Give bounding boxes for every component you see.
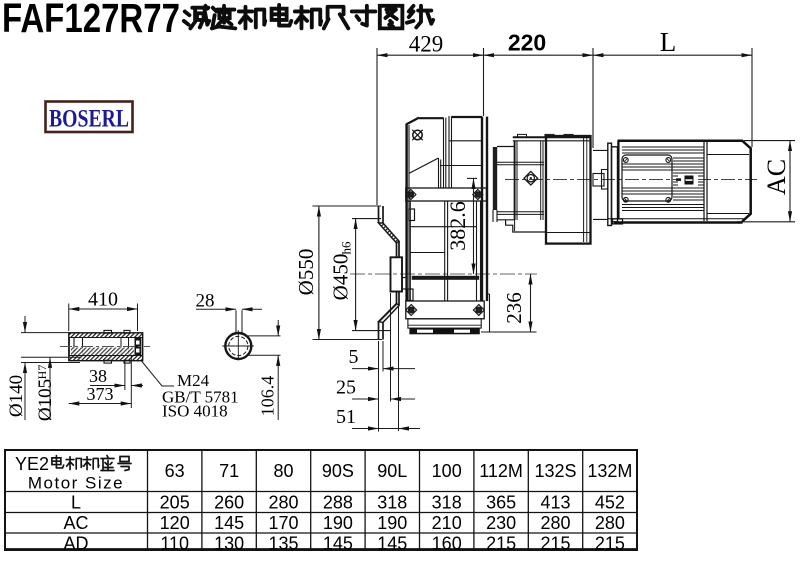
svg-text:h6: h6: [339, 241, 354, 255]
svg-text:132S: 132S: [534, 461, 576, 481]
svg-text:90L: 90L: [377, 461, 407, 481]
svg-text:Ø105: Ø105: [35, 379, 56, 421]
svg-text:38: 38: [89, 366, 107, 386]
svg-text:452: 452: [595, 493, 625, 513]
svg-text:288: 288: [323, 493, 353, 513]
svg-text:135: 135: [268, 534, 298, 554]
svg-text:110: 110: [160, 534, 189, 554]
svg-text:Motor Size: Motor Size: [28, 474, 124, 493]
svg-text:190: 190: [377, 513, 407, 533]
svg-text:80: 80: [273, 461, 293, 481]
svg-text:413: 413: [540, 493, 570, 513]
svg-text:AC: AC: [63, 513, 88, 533]
svg-text:L: L: [71, 493, 81, 513]
svg-text:51: 51: [336, 406, 356, 428]
svg-text:210: 210: [432, 513, 462, 533]
svg-text:318: 318: [432, 493, 462, 513]
svg-text:205: 205: [160, 493, 190, 513]
svg-text:429: 429: [409, 32, 444, 57]
svg-text:YE2: YE2: [15, 454, 49, 474]
svg-text:90S: 90S: [322, 461, 354, 481]
svg-text:AC: AC: [762, 159, 791, 195]
svg-text:Ø550: Ø550: [294, 249, 318, 296]
svg-text:106.4: 106.4: [258, 376, 278, 417]
svg-text:215: 215: [486, 534, 516, 554]
svg-text:145: 145: [323, 534, 353, 554]
svg-text:71: 71: [219, 461, 239, 481]
svg-text:H7: H7: [35, 365, 49, 380]
svg-text:Ø450: Ø450: [329, 254, 353, 301]
svg-text:318: 318: [377, 493, 407, 513]
svg-text:215: 215: [540, 534, 570, 554]
svg-text:280: 280: [268, 493, 298, 513]
svg-text:5: 5: [349, 346, 359, 368]
svg-text:L: L: [660, 27, 677, 57]
svg-text:BOSERL: BOSERL: [49, 106, 129, 133]
svg-text:120: 120: [160, 513, 190, 533]
svg-text:145: 145: [214, 513, 244, 533]
svg-text:25: 25: [336, 377, 356, 399]
svg-text:220: 220: [508, 30, 546, 56]
svg-text:170: 170: [268, 513, 298, 533]
svg-text:63: 63: [165, 461, 185, 481]
svg-text:130: 130: [214, 534, 244, 554]
svg-text:AD: AD: [63, 534, 88, 554]
svg-text:365: 365: [486, 493, 516, 513]
svg-text:145: 145: [377, 534, 407, 554]
svg-text:230: 230: [486, 513, 516, 533]
svg-text:236: 236: [502, 292, 526, 324]
svg-text:FAF127R77: FAF127R77: [2, 0, 180, 41]
svg-text:260: 260: [214, 493, 244, 513]
svg-text:132M: 132M: [587, 461, 632, 481]
svg-text:Ø140: Ø140: [6, 375, 27, 417]
svg-text:382.6: 382.6: [445, 201, 470, 251]
svg-text:410: 410: [88, 289, 118, 311]
svg-text:112M: 112M: [479, 461, 523, 481]
svg-text:28: 28: [196, 291, 215, 312]
svg-text:160: 160: [432, 534, 462, 554]
svg-text:280: 280: [595, 513, 625, 533]
svg-text:215: 215: [595, 534, 625, 554]
svg-text:ISO 4018: ISO 4018: [162, 402, 228, 421]
svg-text:280: 280: [540, 513, 570, 533]
svg-text:100: 100: [432, 461, 462, 481]
svg-text:373: 373: [87, 384, 114, 404]
svg-text:190: 190: [323, 513, 353, 533]
